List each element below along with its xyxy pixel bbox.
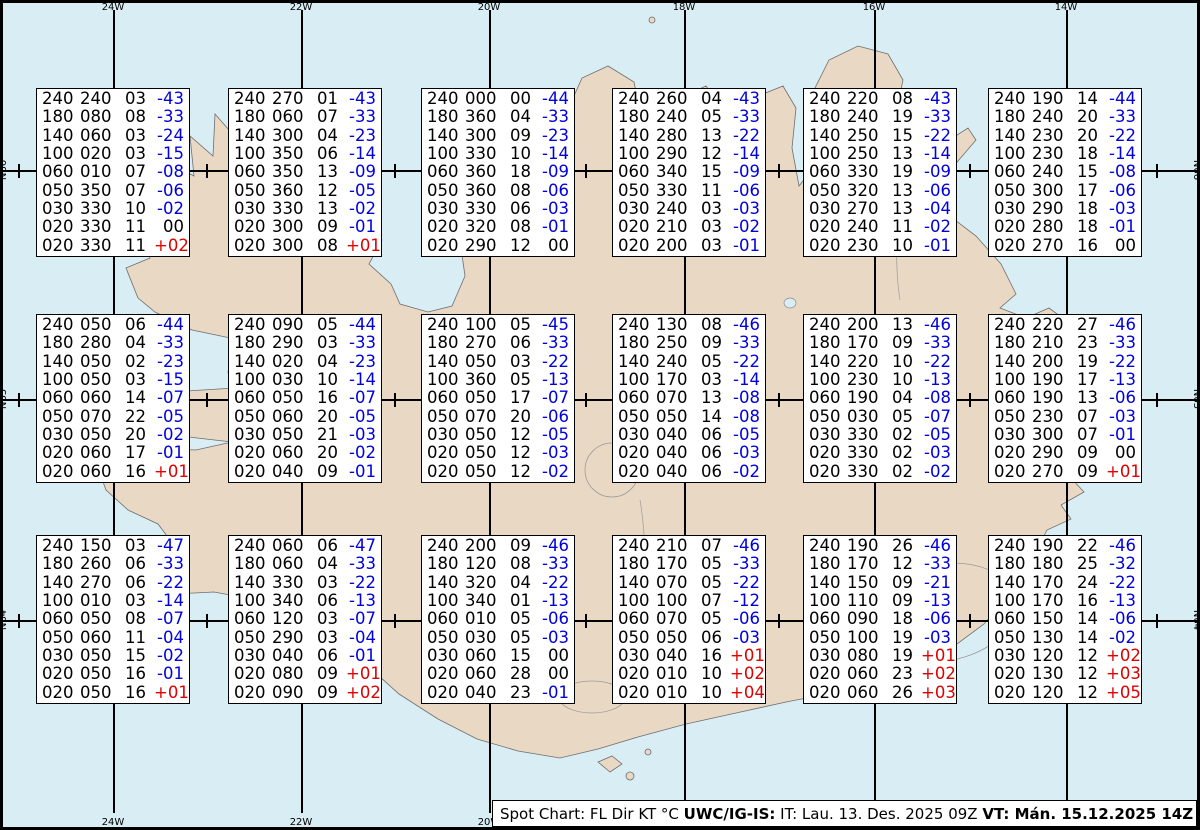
spot-row: 05032013-06	[809, 182, 951, 200]
fl-cell: 050	[809, 629, 847, 647]
meridian-label-top-18w: 18W	[673, 2, 696, 13]
dir-cell: 270	[847, 200, 892, 218]
kt-cell: 16	[1077, 237, 1106, 255]
fl-cell: 060	[994, 389, 1032, 407]
dir-cell: 350	[272, 163, 317, 181]
dir-cell: 090	[847, 610, 892, 628]
kt-cell: 09	[510, 127, 539, 145]
temp-cell: -47	[154, 537, 184, 555]
dir-cell: 070	[656, 389, 701, 407]
kt-cell: 12	[701, 145, 730, 163]
spot-box-r3c3: 24020009-4618012008-3314032004-221003400…	[421, 535, 575, 704]
spot-row: 05036012-05	[234, 182, 376, 200]
spot-box-r1c5: 24022008-4318024019-3314025015-221002501…	[803, 88, 957, 257]
temp-cell: -08	[1106, 163, 1136, 181]
spot-row: 24019026-46	[809, 537, 951, 555]
kt-cell: 10	[892, 237, 921, 255]
dir-cell: 050	[80, 316, 125, 334]
dir-cell: 030	[465, 629, 510, 647]
kt-cell: 10	[701, 665, 730, 683]
fl-cell: 020	[809, 444, 847, 462]
spot-row: 03027013-04	[809, 200, 951, 218]
dir-cell: 010	[80, 592, 125, 610]
graticule-tick	[778, 164, 780, 178]
dir-cell: 050	[80, 665, 125, 683]
dir-cell: 050	[465, 463, 510, 481]
fl-cell: 020	[994, 218, 1032, 236]
temp-cell: -02	[539, 463, 569, 481]
temp-cell: -06	[539, 610, 569, 628]
fl-cell: 180	[618, 108, 656, 126]
dir-cell: 120	[465, 555, 510, 573]
spot-row: 18027006-33	[427, 334, 569, 352]
dir-cell: 320	[465, 574, 510, 592]
footer-forecast-offset: (+53 h)	[1193, 805, 1200, 823]
kt-cell: 14	[1077, 90, 1106, 108]
fl-cell: 030	[42, 200, 80, 218]
temp-cell: -06	[1106, 182, 1136, 200]
kt-cell: 01	[317, 90, 346, 108]
kt-cell: 00	[510, 90, 539, 108]
temp-cell: -01	[730, 237, 760, 255]
temp-cell: +02	[730, 665, 765, 683]
spot-row: 03024003-03	[618, 200, 760, 218]
temp-cell: -06	[539, 182, 569, 200]
temp-cell: -13	[346, 592, 376, 610]
spot-row: 10023010-13	[809, 371, 951, 389]
kt-cell: 10	[125, 200, 154, 218]
spot-row: 03004006-05	[618, 426, 760, 444]
kt-cell: 02	[892, 463, 921, 481]
spot-row: 02020003-01	[618, 237, 760, 255]
spot-row: 05035007-06	[42, 182, 184, 200]
kt-cell: 13	[701, 389, 730, 407]
temp-cell: +03	[921, 684, 956, 702]
kt-cell: 03	[125, 90, 154, 108]
kt-cell: 04	[317, 555, 346, 573]
dir-cell: 290	[272, 629, 317, 647]
spot-row: 02008009+01	[234, 665, 376, 683]
spot-row: 10003010-14	[234, 371, 376, 389]
dir-cell: 060	[847, 684, 892, 702]
fl-cell: 060	[618, 163, 656, 181]
meridian-label-top-22w: 22W	[290, 2, 313, 13]
dir-cell: 050	[465, 353, 510, 371]
dir-cell: 340	[656, 163, 701, 181]
kt-cell: 01	[510, 592, 539, 610]
dir-cell: 330	[847, 426, 892, 444]
spot-row: 18006007-33	[234, 108, 376, 126]
spot-row: 06001005-06	[427, 610, 569, 628]
kt-cell: 11	[125, 218, 154, 236]
kt-cell: 16	[125, 463, 154, 481]
fl-cell: 050	[42, 408, 80, 426]
island-small-1	[626, 772, 634, 780]
spot-row: 14033003-22	[234, 574, 376, 592]
temp-cell: -22	[539, 353, 569, 371]
fl-cell: 050	[809, 408, 847, 426]
temp-cell: +01	[346, 237, 381, 255]
dir-cell: 050	[656, 408, 701, 426]
spot-row: 24024003-43	[42, 90, 184, 108]
kt-cell: 07	[701, 592, 730, 610]
kt-cell: 03	[125, 127, 154, 145]
dir-cell: 360	[272, 182, 317, 200]
fl-cell: 140	[618, 127, 656, 145]
fl-cell: 240	[42, 316, 80, 334]
fl-cell: 100	[809, 371, 847, 389]
fl-cell: 240	[618, 90, 656, 108]
dir-cell: 060	[272, 444, 317, 462]
temp-cell: -46	[1106, 537, 1136, 555]
spot-row: 05005006-03	[618, 629, 760, 647]
dir-cell: 040	[656, 647, 701, 665]
temp-cell: -22	[921, 127, 951, 145]
kt-cell: 24	[1077, 574, 1106, 592]
temp-cell: -02	[346, 200, 376, 218]
kt-cell: 04	[701, 90, 730, 108]
kt-cell: 03	[317, 334, 346, 352]
temp-cell: -01	[539, 218, 569, 236]
kt-cell: 13	[892, 182, 921, 200]
temp-cell: -12	[730, 592, 760, 610]
spot-row: 02005012-02	[427, 463, 569, 481]
temp-cell: -13	[539, 371, 569, 389]
fl-cell: 020	[427, 463, 465, 481]
kt-cell: 03	[125, 537, 154, 555]
dir-cell: 250	[656, 334, 701, 352]
kt-cell: 12	[510, 444, 539, 462]
spot-row: 14005003-22	[427, 353, 569, 371]
spot-row: 02021003-02	[618, 218, 760, 236]
spot-row: 05007020-06	[427, 408, 569, 426]
spot-row: 06019004-08	[809, 389, 951, 407]
kt-cell: 13	[317, 163, 346, 181]
dir-cell: 000	[465, 90, 510, 108]
spot-row: 02004006-02	[618, 463, 760, 481]
dir-cell: 060	[272, 555, 317, 573]
dir-cell: 220	[847, 90, 892, 108]
dir-cell: 360	[465, 182, 510, 200]
temp-cell: -05	[539, 426, 569, 444]
temp-cell: -01	[346, 463, 376, 481]
fl-cell: 060	[234, 163, 272, 181]
dir-cell: 060	[80, 463, 125, 481]
temp-cell: -07	[154, 610, 184, 628]
graticule-tick	[585, 614, 587, 628]
spot-row: 10033010-14	[427, 145, 569, 163]
kt-cell: 05	[510, 610, 539, 628]
spot-row: 02006026+03	[809, 684, 951, 702]
dir-cell: 070	[465, 408, 510, 426]
temp-cell: -09	[921, 163, 951, 181]
dir-cell: 330	[272, 200, 317, 218]
dir-cell: 190	[847, 537, 892, 555]
dir-cell: 050	[272, 426, 317, 444]
fl-cell: 050	[618, 408, 656, 426]
spot-row: 14020019-22	[994, 353, 1136, 371]
fl-cell: 020	[234, 237, 272, 255]
fl-cell: 180	[994, 555, 1032, 573]
fl-cell: 180	[809, 555, 847, 573]
dir-cell: 260	[80, 555, 125, 573]
fl-cell: 140	[42, 353, 80, 371]
spot-row: 14006003-24	[42, 127, 184, 145]
spot-row: 10029012-14	[618, 145, 760, 163]
temp-cell: -33	[921, 555, 951, 573]
spot-row: 14022010-22	[809, 353, 951, 371]
dir-cell: 250	[847, 127, 892, 145]
dir-cell: 010	[465, 610, 510, 628]
dir-cell: 210	[656, 537, 701, 555]
fl-cell: 100	[234, 592, 272, 610]
temp-cell: -33	[730, 334, 760, 352]
dir-cell: 040	[272, 463, 317, 481]
fl-cell: 050	[42, 182, 80, 200]
kt-cell: 13	[892, 316, 921, 334]
kt-cell: 09	[317, 665, 346, 683]
kt-cell: 18	[892, 610, 921, 628]
footer-center-id: UWC/IG-IS:	[684, 805, 776, 823]
temp-cell: -21	[921, 574, 951, 592]
kt-cell: 07	[125, 163, 154, 181]
graticule-tick	[585, 164, 587, 178]
dir-cell: 210	[1032, 334, 1077, 352]
kt-cell: 09	[1077, 444, 1106, 462]
spot-row: 05005014-08	[618, 408, 760, 426]
fl-cell: 100	[234, 145, 272, 163]
kt-cell: 03	[125, 145, 154, 163]
fl-cell: 240	[427, 90, 465, 108]
spot-row: 18012008-33	[427, 555, 569, 573]
graticule-tick	[969, 393, 971, 407]
dir-cell: 330	[847, 463, 892, 481]
temp-cell: -33	[346, 555, 376, 573]
fl-cell: 020	[994, 237, 1032, 255]
fl-cell: 060	[809, 610, 847, 628]
kt-cell: 08	[125, 108, 154, 126]
spot-row: 24026004-43	[618, 90, 760, 108]
graticule-tick	[1156, 393, 1158, 407]
kt-cell: 06	[510, 200, 539, 218]
kt-cell: 06	[510, 334, 539, 352]
fl-cell: 240	[42, 537, 80, 555]
fl-cell: 240	[234, 90, 272, 108]
temp-cell: -23	[346, 127, 376, 145]
fl-cell: 140	[809, 574, 847, 592]
temp-cell: -01	[154, 444, 184, 462]
dir-cell: 060	[80, 389, 125, 407]
kt-cell: 03	[510, 353, 539, 371]
fl-cell: 100	[234, 371, 272, 389]
spot-row: 10025013-14	[809, 145, 951, 163]
dir-cell: 360	[465, 108, 510, 126]
spot-row: 14002004-23	[234, 353, 376, 371]
spot-row: 24015003-47	[42, 537, 184, 555]
spot-row: 03033013-02	[234, 200, 376, 218]
fl-cell: 030	[618, 200, 656, 218]
kt-cell: 03	[701, 200, 730, 218]
spot-row: 18026006-33	[42, 555, 184, 573]
fl-cell: 100	[427, 371, 465, 389]
temp-cell: -46	[730, 316, 760, 334]
spot-row: 18017009-33	[809, 334, 951, 352]
fl-cell: 100	[618, 371, 656, 389]
temp-cell: -15	[154, 145, 184, 163]
temp-cell: -06	[539, 408, 569, 426]
dir-cell: 320	[465, 218, 510, 236]
parallel-label-right-n66: N66	[1191, 160, 1200, 180]
fl-cell: 030	[42, 647, 80, 665]
kt-cell: 07	[701, 537, 730, 555]
kt-cell: 15	[892, 127, 921, 145]
temp-cell: -15	[154, 371, 184, 389]
dir-cell: 050	[465, 426, 510, 444]
temp-cell: -46	[921, 537, 951, 555]
kt-cell: 11	[125, 629, 154, 647]
dir-cell: 270	[80, 574, 125, 592]
temp-cell: -13	[1106, 592, 1136, 610]
kt-cell: 13	[1077, 389, 1106, 407]
kt-cell: 13	[317, 200, 346, 218]
spot-row: 03033006-03	[427, 200, 569, 218]
spot-row: 10017016-13	[994, 592, 1136, 610]
fl-cell: 140	[994, 127, 1032, 145]
temp-cell: -01	[346, 218, 376, 236]
fl-cell: 020	[618, 218, 656, 236]
fl-cell: 140	[234, 127, 272, 145]
temp-cell: -07	[539, 389, 569, 407]
dir-cell: 330	[847, 444, 892, 462]
temp-cell: -08	[730, 408, 760, 426]
kt-cell: 15	[701, 163, 730, 181]
dir-cell: 300	[272, 218, 317, 236]
kt-cell: 19	[1077, 353, 1106, 371]
temp-cell: -06	[1106, 389, 1136, 407]
kt-cell: 05	[317, 316, 346, 334]
kt-cell: 02	[892, 444, 921, 462]
spot-row: 03005021-03	[234, 426, 376, 444]
island-grimsey	[649, 17, 655, 23]
kt-cell: 05	[510, 371, 539, 389]
spot-box-r3c5: 24019026-4618017012-3314015009-211001100…	[803, 535, 957, 704]
fl-cell: 060	[42, 389, 80, 407]
temp-cell: -03	[346, 426, 376, 444]
spot-row: 06012003-07	[234, 610, 376, 628]
fl-cell: 100	[994, 145, 1032, 163]
meridian-label-top-20w: 20W	[478, 2, 501, 13]
spot-row: 24022027-46	[994, 316, 1136, 334]
temp-cell: -01	[1106, 218, 1136, 236]
graticule-tick	[778, 393, 780, 407]
kt-cell: 12	[510, 426, 539, 444]
spot-row: 18025009-33	[618, 334, 760, 352]
spot-row: 02012012+05	[994, 684, 1136, 702]
graticule-tick	[206, 614, 208, 628]
kt-cell: 02	[892, 426, 921, 444]
spot-row: 05023007-03	[994, 408, 1136, 426]
fl-cell: 030	[809, 647, 847, 665]
dir-cell: 200	[1032, 353, 1077, 371]
graticule-tick	[1156, 614, 1158, 628]
spot-box-r3c1: 24015003-4718026006-3314027006-221000100…	[36, 535, 190, 704]
dir-cell: 170	[847, 555, 892, 573]
fl-cell: 060	[809, 163, 847, 181]
spot-row: 02013012+03	[994, 665, 1136, 683]
spot-row: 10011009-13	[809, 592, 951, 610]
dir-cell: 330	[80, 200, 125, 218]
kt-cell: 20	[317, 444, 346, 462]
fl-cell: 030	[234, 647, 272, 665]
graticule-tick	[18, 164, 20, 178]
fl-cell: 030	[994, 426, 1032, 444]
fl-cell: 050	[994, 182, 1032, 200]
temp-cell: -07	[346, 389, 376, 407]
spot-row: 24020013-46	[809, 316, 951, 334]
dir-cell: 330	[465, 200, 510, 218]
dir-cell: 050	[80, 610, 125, 628]
temp-cell: -07	[346, 610, 376, 628]
dir-cell: 190	[1032, 371, 1077, 389]
dir-cell: 060	[847, 665, 892, 683]
dir-cell: 120	[1032, 684, 1077, 702]
kt-cell: 23	[510, 684, 539, 702]
dir-cell: 190	[1032, 537, 1077, 555]
spot-row: 10010007-12	[618, 592, 760, 610]
kt-cell: 06	[317, 592, 346, 610]
fl-cell: 140	[427, 127, 465, 145]
spot-row: 02006020-02	[234, 444, 376, 462]
spot-box-r3c6: 24019022-4618018025-3214017024-221001701…	[988, 535, 1142, 704]
dir-cell: 050	[80, 647, 125, 665]
spot-row: 0300601500	[427, 647, 569, 665]
graticule-tick	[394, 164, 396, 178]
temp-cell: -46	[921, 316, 951, 334]
temp-cell: -07	[921, 408, 951, 426]
temp-cell: -14	[539, 145, 569, 163]
spot-row: 03008019+01	[809, 647, 951, 665]
fl-cell: 060	[234, 610, 272, 628]
fl-cell: 020	[809, 463, 847, 481]
spot-row: 0202900900	[994, 444, 1136, 462]
spot-row: 02006017-01	[42, 444, 184, 462]
spot-row: 18024005-33	[618, 108, 760, 126]
dir-cell: 200	[656, 237, 701, 255]
fl-cell: 180	[42, 108, 80, 126]
footer-issue-time: IT: Lau. 13. Des. 2025 09Z	[775, 805, 982, 823]
temp-cell: -03	[1106, 200, 1136, 218]
dir-cell: 240	[1032, 108, 1077, 126]
fl-cell: 020	[618, 444, 656, 462]
kt-cell: 06	[125, 574, 154, 592]
fl-cell: 020	[994, 684, 1032, 702]
spot-row: 02032008-01	[427, 218, 569, 236]
temp-cell: -44	[346, 316, 376, 334]
kt-cell: 15	[510, 647, 539, 665]
kt-cell: 03	[701, 237, 730, 255]
kt-cell: 05	[510, 629, 539, 647]
dir-cell: 090	[272, 316, 317, 334]
spot-row: 05006020-05	[234, 408, 376, 426]
temp-cell: -33	[539, 555, 569, 573]
temp-cell: -22	[1106, 127, 1136, 145]
temp-cell: -03	[539, 444, 569, 462]
meridian-label-top-24w: 24W	[102, 2, 125, 13]
dir-cell: 220	[847, 353, 892, 371]
fl-cell: 240	[809, 316, 847, 334]
temp-cell: -22	[730, 127, 760, 145]
kt-cell: 05	[701, 353, 730, 371]
